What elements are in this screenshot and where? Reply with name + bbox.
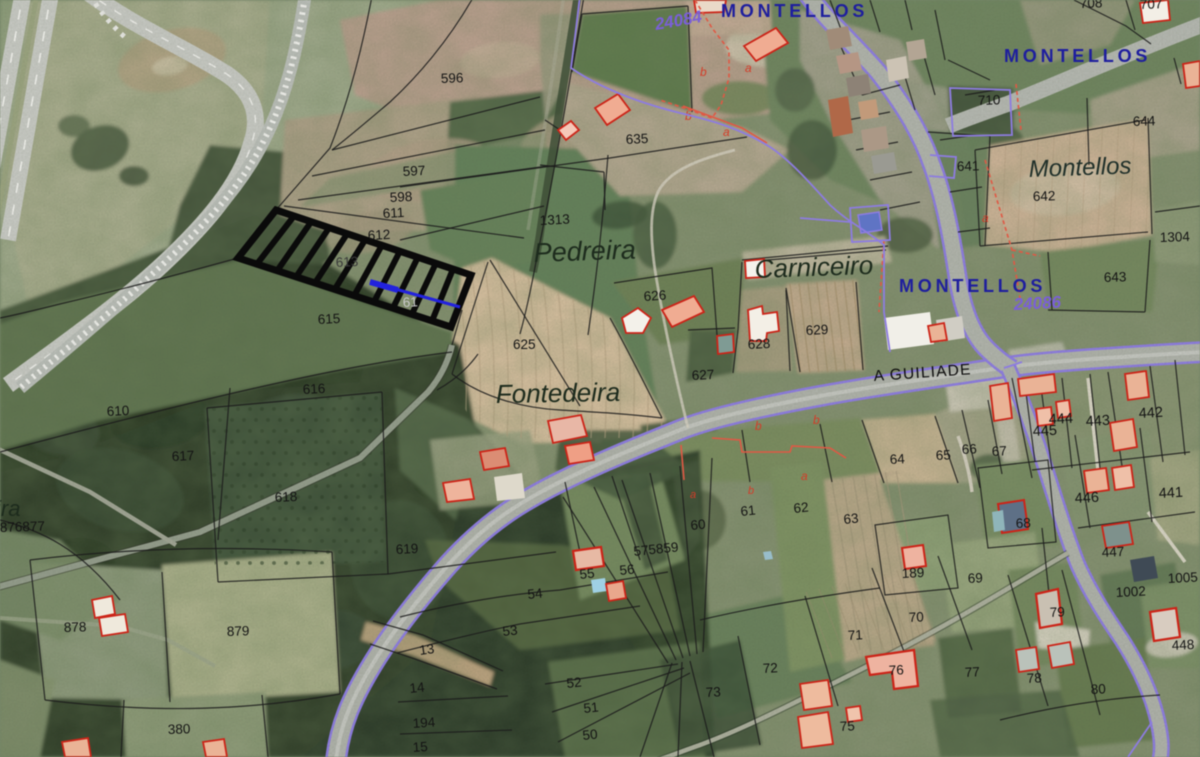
- svg-text:62: 62: [793, 499, 810, 515]
- svg-text:644: 644: [1133, 113, 1157, 129]
- svg-text:a: a: [690, 489, 696, 501]
- svg-text:66: 66: [961, 441, 977, 457]
- svg-text:707: 707: [1140, 0, 1163, 12]
- svg-text:54: 54: [527, 585, 544, 602]
- svg-text:612: 612: [367, 227, 390, 243]
- svg-text:69: 69: [967, 570, 983, 586]
- svg-text:72: 72: [762, 660, 778, 676]
- svg-text:78: 78: [1026, 670, 1042, 686]
- svg-text:611: 611: [382, 205, 404, 221]
- svg-text:15: 15: [412, 739, 428, 755]
- svg-text:b: b: [755, 419, 762, 433]
- svg-text:613: 613: [335, 254, 358, 270]
- svg-text:615: 615: [317, 311, 340, 327]
- svg-text:MONTELLOS: MONTELLOS: [1004, 46, 1151, 66]
- svg-text:442: 442: [1138, 405, 1163, 422]
- svg-text:63: 63: [843, 510, 860, 526]
- svg-text:629: 629: [805, 322, 828, 338]
- svg-text:76: 76: [888, 662, 904, 678]
- svg-text:643: 643: [1104, 269, 1127, 285]
- svg-text:189: 189: [901, 565, 924, 581]
- svg-text:MONTELLOS: MONTELLOS: [721, 1, 868, 21]
- svg-text:55: 55: [579, 565, 596, 581]
- svg-text:Fontedeira: Fontedeira: [496, 377, 621, 409]
- svg-text:598: 598: [389, 189, 412, 205]
- svg-text:708: 708: [1080, 0, 1103, 11]
- svg-text:52: 52: [566, 674, 583, 690]
- svg-text:610: 610: [106, 403, 129, 419]
- svg-text:627: 627: [691, 367, 714, 383]
- svg-text:1002: 1002: [1115, 583, 1146, 600]
- svg-text:79: 79: [1049, 604, 1065, 620]
- svg-text:61: 61: [402, 294, 418, 310]
- svg-text:80: 80: [1090, 681, 1106, 697]
- svg-text:56: 56: [619, 561, 636, 577]
- svg-text:443: 443: [1085, 413, 1110, 430]
- svg-text:73: 73: [705, 684, 721, 700]
- svg-text:a: a: [745, 61, 752, 75]
- svg-text:625: 625: [513, 337, 536, 352]
- svg-text:MONTELLOS: MONTELLOS: [899, 276, 1046, 296]
- svg-text:441: 441: [1158, 485, 1183, 502]
- svg-text:447: 447: [1101, 544, 1124, 560]
- svg-text:445: 445: [1032, 423, 1057, 440]
- svg-text:64: 64: [889, 451, 905, 467]
- svg-text:b: b: [813, 413, 820, 427]
- svg-text:597: 597: [402, 163, 425, 179]
- svg-text:616: 616: [302, 381, 325, 397]
- svg-text:380: 380: [168, 721, 191, 737]
- svg-text:50: 50: [582, 726, 599, 742]
- svg-text:194: 194: [412, 714, 436, 731]
- svg-text:14: 14: [409, 679, 426, 696]
- svg-text:710: 710: [978, 92, 1001, 108]
- svg-text:77: 77: [964, 664, 980, 680]
- svg-text:60: 60: [690, 516, 707, 532]
- svg-text:24086: 24086: [1012, 293, 1062, 315]
- svg-text:51: 51: [583, 699, 600, 715]
- svg-text:Carniceiro: Carniceiro: [754, 250, 873, 284]
- svg-text:b: b: [748, 485, 754, 497]
- svg-text:879: 879: [227, 623, 250, 639]
- svg-text:70: 70: [908, 609, 924, 625]
- svg-text:Pedreira: Pedreira: [533, 234, 636, 268]
- svg-text:a: a: [982, 211, 989, 225]
- svg-text:68: 68: [1015, 515, 1031, 531]
- svg-text:13: 13: [418, 641, 435, 658]
- svg-text:1313: 1313: [539, 211, 570, 228]
- svg-text:642: 642: [1033, 188, 1056, 204]
- svg-text:641: 641: [957, 158, 980, 174]
- svg-text:53: 53: [502, 622, 519, 638]
- svg-text:617: 617: [171, 448, 194, 464]
- svg-text:878: 878: [64, 619, 87, 635]
- svg-text:448: 448: [1171, 637, 1194, 653]
- svg-text:628: 628: [747, 336, 770, 352]
- svg-text:61: 61: [740, 502, 757, 518]
- svg-text:67: 67: [991, 443, 1007, 459]
- svg-text:446: 446: [1074, 490, 1099, 507]
- svg-text:626: 626: [643, 287, 667, 304]
- svg-text:1304: 1304: [1160, 229, 1191, 245]
- svg-text:Montellos: Montellos: [1028, 152, 1132, 183]
- svg-text:618: 618: [274, 489, 297, 505]
- svg-text:a: a: [801, 469, 808, 483]
- svg-text:b: b: [700, 65, 707, 79]
- svg-text:ira: ira: [0, 496, 20, 521]
- svg-text:1005: 1005: [1167, 569, 1198, 586]
- svg-text:635: 635: [625, 131, 648, 147]
- svg-text:596: 596: [441, 70, 464, 86]
- svg-text:619: 619: [395, 541, 418, 557]
- svg-text:65: 65: [935, 447, 951, 463]
- svg-text:75: 75: [839, 718, 855, 734]
- svg-text:71: 71: [847, 627, 863, 643]
